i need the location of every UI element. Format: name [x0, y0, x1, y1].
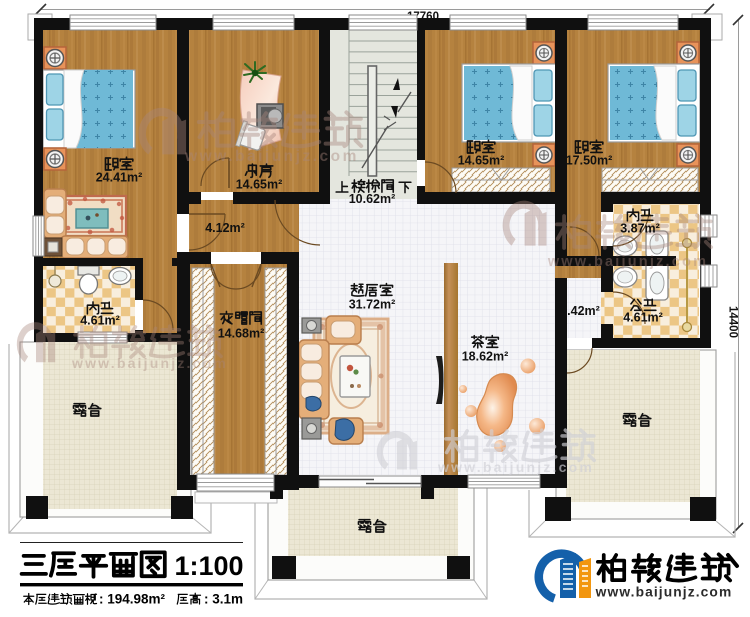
svg-text:www.baijunjz.com: www.baijunjz.com — [71, 355, 228, 371]
svg-text:14400: 14400 — [727, 306, 739, 338]
svg-text:4.12m²: 4.12m² — [205, 221, 245, 235]
svg-text:24.41m²: 24.41m² — [96, 170, 143, 184]
svg-text:www.baijunjz.com: www.baijunjz.com — [547, 254, 708, 270]
svg-text:17.50m²: 17.50m² — [566, 153, 613, 167]
svg-text:10.62m²: 10.62m² — [349, 192, 396, 206]
svg-text:www.baijunjz.com: www.baijunjz.com — [184, 148, 359, 165]
svg-text:2.42m²: 2.42m² — [560, 304, 600, 318]
svg-text:14.65m²: 14.65m² — [236, 177, 283, 191]
svg-text:www.baijunjz.com: www.baijunjz.com — [595, 585, 733, 600]
svg-text:: 194.98m²: : 194.98m² — [99, 592, 166, 607]
svg-text:3.87m²: 3.87m² — [620, 221, 660, 235]
svg-text:: 3.1m: : 3.1m — [204, 592, 243, 607]
svg-text:14.68m²: 14.68m² — [218, 326, 265, 340]
svg-text:www.baijunjz.com: www.baijunjz.com — [437, 459, 594, 475]
svg-text:4.61m²: 4.61m² — [80, 313, 120, 327]
svg-text:14.65m²: 14.65m² — [458, 153, 505, 167]
svg-text:1:100: 1:100 — [174, 551, 243, 581]
svg-text:18.62m²: 18.62m² — [462, 349, 509, 363]
svg-text:4.61m²: 4.61m² — [623, 310, 663, 324]
svg-text:31.72m²: 31.72m² — [349, 297, 396, 311]
